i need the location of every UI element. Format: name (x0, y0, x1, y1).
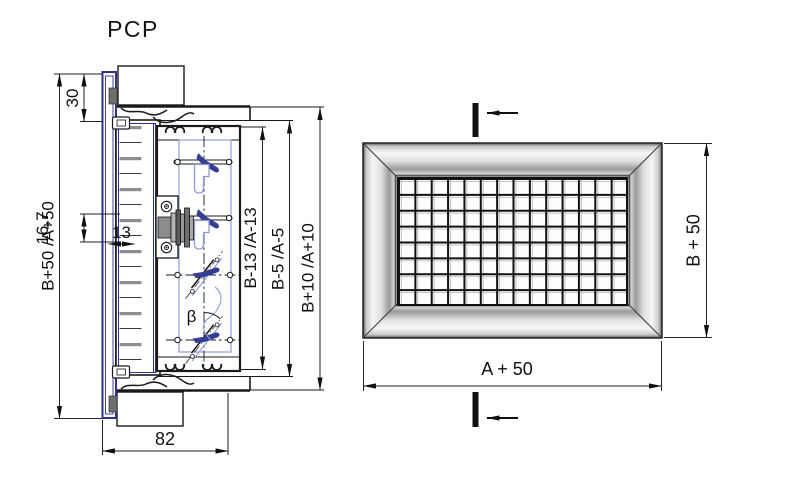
dimension-depth: 82 (103, 393, 229, 455)
dimension-height: B + 50 (664, 144, 712, 338)
inner-size-label: B-5 /A-5 (269, 228, 288, 290)
slat-pitch-label: 16,7 (33, 211, 52, 244)
grille-core-slats (113, 117, 161, 378)
dimension-inner-size: B-5 /A-5 (269, 121, 290, 377)
width-label: A + 50 (481, 359, 533, 379)
gasket-top (109, 88, 117, 104)
dimension-slat-opening: 13 (109, 223, 135, 244)
section-cut-marker-bottom (473, 392, 519, 427)
screw-bottom (161, 242, 171, 252)
screw-top (161, 201, 171, 211)
depth-label: 82 (155, 429, 175, 449)
section-view: PCP (33, 16, 324, 455)
dimension-width: A + 50 (364, 341, 662, 391)
product-code-label: PCP (107, 16, 159, 42)
frame-margin-label: 30 (63, 89, 82, 108)
retainer-clip-top-inner (117, 120, 126, 126)
grille-grid (398, 178, 627, 305)
outer-size-label: B+10 /A+10 (299, 223, 318, 313)
blade-angle-label: β (187, 307, 197, 326)
front-view: A + 50 B + 50 (363, 103, 712, 427)
dimension-overall-height: B+50 /A+50 (39, 74, 103, 419)
retainer-clip-bottom-inner (117, 369, 126, 375)
slat-opening-label: 13 (112, 223, 131, 242)
gasket-bottom (109, 396, 117, 412)
dimension-frame-margin: 30 (63, 74, 103, 122)
section-cut-marker-top (473, 103, 519, 137)
duct-size-label: B-13 /A-13 (241, 207, 260, 288)
drawing-canvas: PCP (0, 0, 800, 500)
dimension-duct-size: B-13 /A-13 (241, 128, 263, 370)
dimension-outer-size: B+10 /A+10 (299, 108, 321, 391)
height-label: B + 50 (684, 214, 704, 267)
technical-drawing: PCP (0, 0, 800, 500)
wall-hatch-bottom (117, 392, 183, 426)
wall-hatch-top (118, 66, 184, 105)
